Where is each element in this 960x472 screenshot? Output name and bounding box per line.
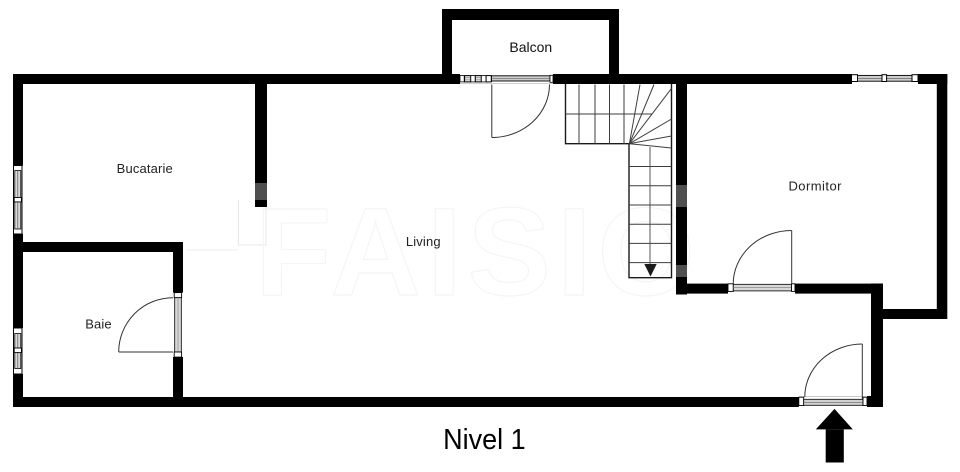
svg-text:Balcon: Balcon [509, 39, 552, 55]
svg-text:FAISIO: FAISIO [255, 183, 701, 322]
svg-text:Nivel 1: Nivel 1 [443, 424, 526, 456]
svg-text:Bucatarie: Bucatarie [117, 161, 173, 176]
svg-text:Living: Living [406, 234, 441, 249]
svg-text:Dormitor: Dormitor [788, 179, 842, 194]
svg-text:Baie: Baie [85, 316, 112, 331]
